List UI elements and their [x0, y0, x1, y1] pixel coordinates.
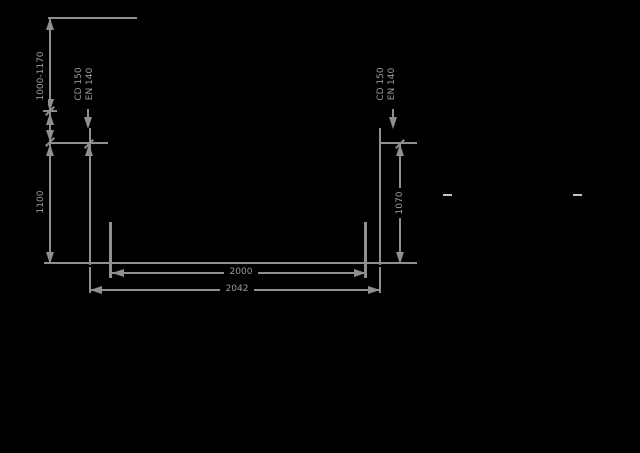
tick-mark-right: [573, 194, 582, 196]
arrow-up-icon: [46, 18, 54, 30]
left-seat-extension-line: [49, 142, 108, 144]
left-leader-arrow-icon: [84, 117, 92, 129]
technical-drawing: 1000-1170 1100 1070 CD 150 EN 140 CD 150…: [0, 0, 640, 453]
arrow-down-icon: [396, 252, 404, 264]
arrow-left-icon: [90, 286, 102, 294]
arrow-right-icon: [354, 269, 366, 277]
right-edge-label-line1: CD 150: [376, 63, 387, 105]
floor-line: [44, 262, 417, 264]
arrow-right-icon: [368, 286, 380, 294]
right-edge-label: CD 150 EN 140: [376, 63, 398, 105]
left-edge-label: CD 150 EN 140: [74, 63, 96, 105]
ground-line-top: [48, 17, 137, 19]
dim-text-right-depth: 1070: [395, 188, 407, 218]
arrow-down-icon: [46, 252, 54, 264]
dim-text-inner-width: 2000: [224, 267, 258, 277]
right-edge-label-line2: EN 140: [387, 63, 398, 105]
right-wall-line: [379, 128, 381, 265]
left-edge-label-line1: CD 150: [74, 63, 85, 105]
left-edge-label-line2: EN 140: [85, 63, 96, 105]
dim-text-depth-range: 1000-1170: [36, 48, 48, 104]
dim-text-outer-width: 2042: [220, 284, 254, 294]
tick-mark-left: [443, 194, 452, 196]
arrow-left-icon: [112, 269, 124, 277]
dim-text-left-depth: 1100: [36, 187, 48, 217]
right-leader-arrow-icon: [389, 117, 397, 129]
